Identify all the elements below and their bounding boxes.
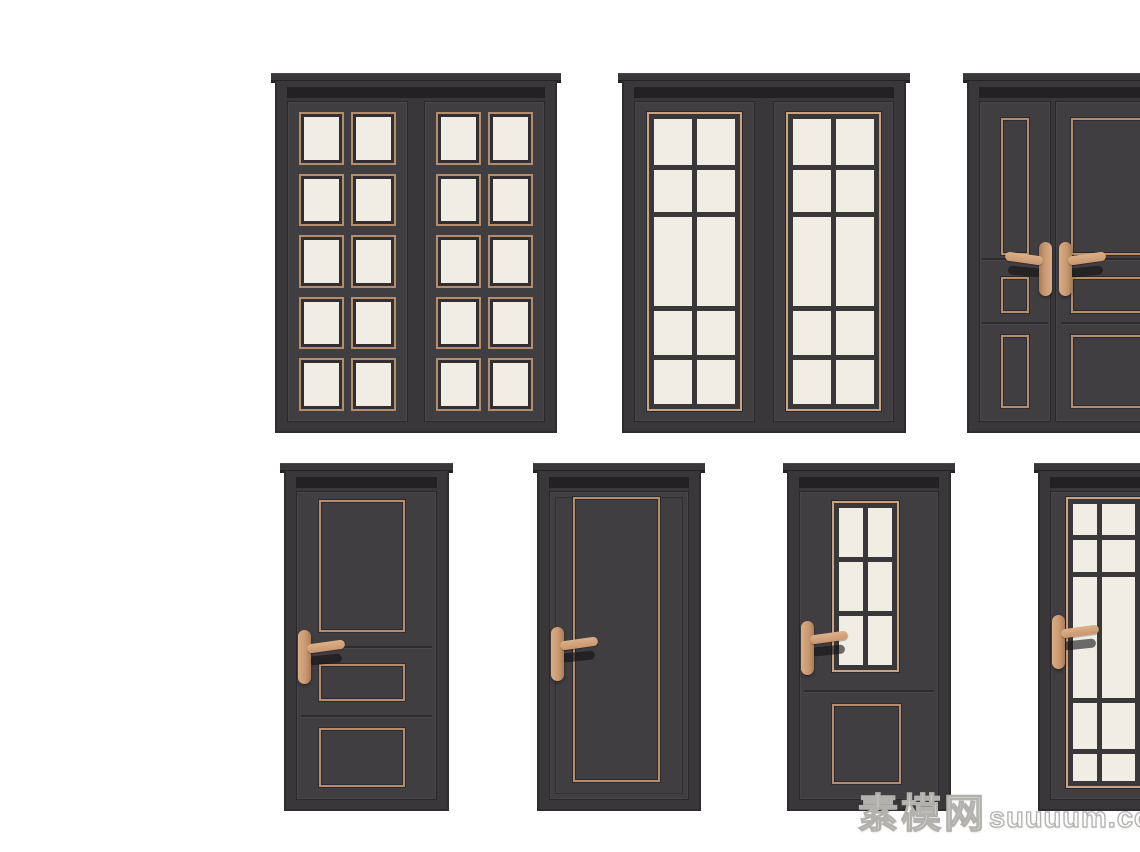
handle-shadow bbox=[562, 650, 596, 662]
inset-panel bbox=[488, 235, 533, 288]
door-leaf bbox=[425, 102, 544, 421]
molding-trim bbox=[319, 728, 405, 786]
glass-pane bbox=[836, 217, 874, 305]
door-handle bbox=[551, 627, 603, 681]
inset-panel bbox=[351, 174, 396, 227]
handle-shadow bbox=[1063, 638, 1097, 650]
molding-trim bbox=[1071, 335, 1140, 408]
handle-lever bbox=[560, 636, 599, 650]
door-leaf bbox=[297, 492, 436, 799]
handle-lever bbox=[1061, 624, 1100, 638]
door-handle bbox=[1052, 615, 1104, 669]
panel-rail bbox=[804, 690, 934, 692]
door-top-reveal bbox=[549, 477, 689, 488]
glass-pane bbox=[836, 170, 874, 212]
door-frame bbox=[967, 81, 1140, 433]
door-frame bbox=[1038, 471, 1140, 811]
glass-muntin-grid bbox=[654, 119, 735, 404]
handle-plate bbox=[1059, 242, 1072, 296]
panel-rail bbox=[301, 715, 432, 717]
handle-shadow bbox=[812, 644, 846, 656]
door-leaf bbox=[550, 492, 688, 799]
glass-pane bbox=[697, 360, 735, 404]
glass-pane bbox=[839, 562, 863, 611]
door-top-reveal bbox=[799, 477, 939, 488]
door-handle bbox=[298, 630, 350, 684]
door-top-reveal bbox=[979, 87, 1140, 98]
glass-pane bbox=[1073, 703, 1097, 749]
handle-plate bbox=[1052, 615, 1065, 669]
door-leaves bbox=[635, 102, 893, 421]
handle-lever bbox=[1067, 252, 1106, 266]
inset-panel bbox=[488, 174, 533, 227]
glass-pane bbox=[793, 311, 831, 355]
door-frame bbox=[275, 81, 557, 433]
door-leaves bbox=[800, 492, 938, 799]
handle-shadow bbox=[1008, 266, 1042, 278]
door-leaf bbox=[288, 102, 407, 421]
door-leaf bbox=[800, 492, 938, 799]
molding-trim bbox=[1071, 118, 1140, 255]
glass-pane bbox=[793, 119, 831, 165]
glass-pane bbox=[697, 217, 735, 305]
door-leaves bbox=[297, 492, 436, 799]
glass-pane bbox=[697, 311, 735, 355]
handle-lever bbox=[810, 630, 849, 644]
double-door-panel-grid bbox=[275, 73, 557, 433]
glass-pane bbox=[868, 616, 892, 665]
inset-panel bbox=[351, 297, 396, 350]
glass-pane bbox=[1073, 540, 1097, 572]
glass-pane bbox=[793, 360, 831, 404]
inset-panel bbox=[351, 112, 396, 165]
glass-pane bbox=[1073, 504, 1097, 536]
inset-panel bbox=[299, 358, 344, 411]
door-leaves bbox=[288, 102, 544, 421]
door-leaf bbox=[635, 102, 754, 421]
door-top-reveal bbox=[634, 87, 894, 98]
glass-panel bbox=[786, 112, 881, 411]
molding-trim bbox=[1001, 335, 1029, 408]
glass-pane bbox=[836, 119, 874, 165]
inset-panel bbox=[488, 297, 533, 350]
panel-rail bbox=[1061, 322, 1140, 324]
inset-panel bbox=[299, 235, 344, 288]
glass-pane bbox=[654, 170, 692, 212]
door-leaf bbox=[1051, 492, 1140, 799]
inset-panel bbox=[351, 358, 396, 411]
handle-plate bbox=[1039, 242, 1052, 296]
single-door-glass-top bbox=[787, 463, 951, 811]
inset-panel bbox=[436, 358, 481, 411]
watermark-brand: 素模网 bbox=[858, 781, 987, 839]
inset-panel bbox=[351, 235, 396, 288]
door-frame bbox=[284, 471, 449, 811]
glass-pane bbox=[1102, 754, 1135, 781]
molding-trim bbox=[1001, 118, 1029, 255]
handle-plate bbox=[551, 627, 564, 681]
glass-pane bbox=[654, 119, 692, 165]
glass-pane bbox=[1102, 703, 1135, 749]
door-leaf bbox=[774, 102, 893, 421]
glass-pane bbox=[793, 217, 831, 305]
door-top-reveal bbox=[287, 87, 545, 98]
glass-pane bbox=[836, 360, 874, 404]
handle-lever bbox=[1004, 252, 1043, 266]
glass-muntin-grid bbox=[793, 119, 874, 404]
glass-pane bbox=[836, 311, 874, 355]
inset-panel bbox=[436, 174, 481, 227]
glass-pane bbox=[654, 217, 692, 305]
inset-panel bbox=[488, 112, 533, 165]
handle-plate bbox=[298, 630, 311, 684]
glass-pane bbox=[654, 360, 692, 404]
doors-layer bbox=[0, 0, 1140, 852]
handle-shadow bbox=[309, 653, 343, 665]
door-handle bbox=[1000, 242, 1052, 296]
door-handle bbox=[801, 621, 853, 675]
glass-pane bbox=[868, 508, 892, 557]
door-top-reveal bbox=[296, 477, 437, 488]
glass-pane bbox=[1102, 504, 1135, 536]
glass-pane bbox=[868, 562, 892, 611]
inset-panel bbox=[436, 235, 481, 288]
inset-panel bbox=[299, 297, 344, 350]
single-door-one-panel bbox=[537, 463, 701, 811]
door-top-reveal bbox=[1050, 477, 1140, 488]
watermark: 素模网suuuum.com bbox=[858, 781, 1140, 839]
handle-shadow bbox=[1070, 266, 1104, 278]
handle-lever bbox=[307, 640, 346, 654]
door-frame bbox=[787, 471, 951, 811]
inset-panel bbox=[299, 112, 344, 165]
glass-pane bbox=[697, 119, 735, 165]
door-frame bbox=[622, 81, 906, 433]
glass-pane bbox=[1102, 540, 1135, 572]
glass-pane bbox=[1102, 577, 1135, 698]
handle-plate bbox=[801, 621, 814, 675]
door-leaves bbox=[550, 492, 688, 799]
molding-trim bbox=[319, 500, 405, 632]
single-door-glass-full bbox=[1038, 463, 1140, 811]
glass-pane bbox=[697, 170, 735, 212]
double-door-glass-grid bbox=[622, 73, 906, 433]
door-frame bbox=[537, 471, 701, 811]
glass-pane bbox=[793, 170, 831, 212]
watermark-domain: suuuum.com bbox=[989, 802, 1140, 835]
panel-rail bbox=[982, 322, 1048, 324]
glass-pane bbox=[839, 508, 863, 557]
glass-pane bbox=[1073, 754, 1097, 781]
door-handle bbox=[1059, 242, 1111, 296]
inset-panel bbox=[488, 358, 533, 411]
inset-panel bbox=[436, 112, 481, 165]
glass-pane bbox=[654, 311, 692, 355]
door-leaves bbox=[1051, 492, 1140, 799]
inset-panel bbox=[299, 174, 344, 227]
single-door-three-panel bbox=[284, 463, 449, 811]
door-leaves bbox=[980, 102, 1140, 421]
molding-trim bbox=[832, 704, 901, 784]
glass-panel bbox=[647, 112, 742, 411]
double-door-molded-unequal bbox=[967, 73, 1140, 433]
inset-panel bbox=[436, 297, 481, 350]
